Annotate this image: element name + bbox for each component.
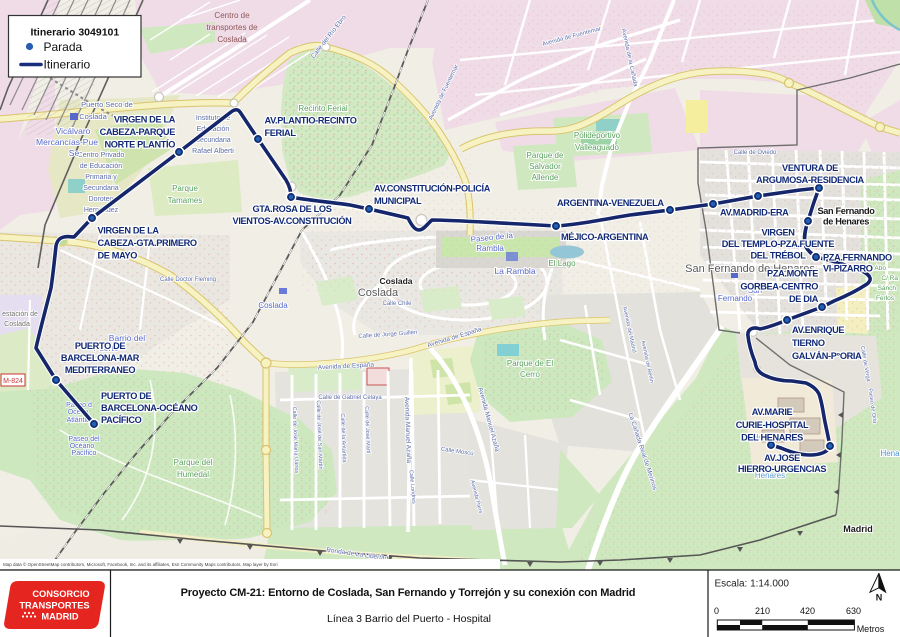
svg-text:CABEZA-PARQUE: CABEZA-PARQUE: [100, 127, 176, 137]
svg-text:PZA.FERNANDO: PZA.FERNANDO: [823, 253, 892, 263]
svg-text:630: 630: [846, 606, 861, 616]
svg-text:Proyecto CM-21: Entorno de Cos: Proyecto CM-21: Entorno de Coslada, San …: [181, 587, 636, 599]
svg-text:de Henares: de Henares: [823, 217, 869, 227]
svg-text:C/ Ra: C/ Ra: [881, 275, 898, 282]
svg-text:Itinerario: Itinerario: [44, 58, 91, 72]
svg-text:TIERNO: TIERNO: [792, 338, 825, 348]
svg-text:Centro Privado: Centro Privado: [78, 152, 125, 159]
svg-text:Polideportivo: Polideportivo: [574, 131, 621, 140]
svg-text:Parque de: Parque de: [527, 151, 564, 160]
svg-text:GORBEA-CENTRO: GORBEA-CENTRO: [740, 282, 818, 292]
svg-text:DE MAYO: DE MAYO: [98, 251, 138, 261]
svg-text:Pacífico: Pacífico: [72, 450, 97, 457]
svg-text:Calle Doctor Fleming: Calle Doctor Fleming: [160, 277, 216, 283]
svg-text:Humedal: Humedal: [177, 470, 209, 479]
svg-text:Parque del: Parque del: [174, 458, 213, 467]
svg-text:Recinto Ferial: Recinto Ferial: [298, 104, 348, 113]
svg-text:CONSORCIO: CONSORCIO: [32, 589, 89, 599]
svg-text:N: N: [876, 593, 883, 603]
svg-text:estación de: estación de: [2, 311, 38, 318]
svg-text:Parada: Parada: [44, 40, 83, 54]
svg-text:Se: Se: [69, 148, 80, 158]
svg-text:CURIE-HOSPITAL: CURIE-HOSPITAL: [736, 420, 809, 430]
svg-text:Map data © OpenStreetMap contr: Map data © OpenStreetMap contributors, M…: [3, 561, 278, 567]
svg-text:M-824: M-824: [3, 378, 23, 385]
svg-text:DEL TRÉBOL: DEL TRÉBOL: [750, 250, 806, 261]
svg-text:MADRID: MADRID: [41, 612, 78, 622]
svg-text:Fernando: Fernando: [718, 294, 753, 303]
svg-text:GALVÁN-P°ORIA: GALVÁN-P°ORIA: [792, 350, 862, 361]
svg-text:Hena: Hena: [880, 449, 900, 458]
svg-text:Paseo del: Paseo del: [68, 436, 100, 443]
svg-text:transportes de: transportes de: [206, 23, 258, 32]
svg-text:Calle Chile: Calle Chile: [382, 301, 412, 307]
svg-text:VI-PIZARRO: VI-PIZARRO: [823, 264, 873, 274]
svg-text:ARGENTINA-VENEZUELA: ARGENTINA-VENEZUELA: [557, 198, 664, 208]
svg-text:Mercancías-Pue: Mercancías-Pue: [36, 137, 98, 147]
svg-text:Calle de Oviedo: Calle de Oviedo: [734, 150, 777, 156]
svg-text:420: 420: [800, 606, 815, 616]
svg-text:San Fernando: San Fernando: [817, 206, 875, 216]
svg-text:Allende: Allende: [532, 173, 559, 182]
svg-text:Océano: Océano: [70, 443, 95, 450]
svg-text:VIRGEN DE LA: VIRGEN DE LA: [114, 115, 176, 125]
svg-text:PUERTO DE: PUERTO DE: [101, 391, 152, 401]
svg-text:BARCELONA-OCÉANO: BARCELONA-OCÉANO: [101, 402, 198, 413]
svg-text:MEDITERRANEO: MEDITERRANEO: [65, 365, 136, 375]
svg-text:Puerto Seco de: Puerto Seco de: [81, 100, 133, 109]
svg-text:CABEZA-GTA.PRIMERO: CABEZA-GTA.PRIMERO: [98, 238, 197, 248]
svg-text:VIRGEN: VIRGEN: [761, 228, 795, 238]
svg-text:VENTURA DE: VENTURA DE: [782, 163, 838, 173]
svg-text:PUERTO DE: PUERTO DE: [75, 341, 126, 351]
svg-text:AV.MADRID-ERA: AV.MADRID-ERA: [720, 208, 789, 218]
svg-text:PZA.MONTE: PZA.MONTE: [767, 269, 818, 279]
svg-text:Coslada: Coslada: [4, 321, 30, 328]
svg-text:Valleaguado: Valleaguado: [575, 143, 619, 152]
svg-text:TRANSPORTES: TRANSPORTES: [19, 601, 89, 611]
svg-text:de Educación: de Educación: [80, 163, 123, 170]
svg-text:ARGUMOSA-RESIDENCIA: ARGUMOSA-RESIDENCIA: [756, 175, 864, 185]
svg-text:GTA.ROSA DE LOS: GTA.ROSA DE LOS: [253, 204, 332, 214]
svg-text:VIRGEN DE LA: VIRGEN DE LA: [98, 226, 160, 236]
svg-text:Sánch: Sánch: [878, 285, 897, 292]
svg-text:VIENTOS-AV.CONSTITUCIÓN: VIENTOS-AV.CONSTITUCIÓN: [233, 215, 353, 226]
svg-text:Línea 3 Barrio del Puerto - Ho: Línea 3 Barrio del Puerto - Hospital: [327, 613, 491, 625]
svg-text:Coslada: Coslada: [79, 112, 107, 121]
svg-text:Cerro: Cerro: [520, 370, 541, 379]
svg-text:Vicálvaro: Vicálvaro: [56, 126, 91, 136]
svg-text:NORTE PLANTÍO: NORTE PLANTÍO: [105, 139, 176, 150]
svg-text:DEL TEMPLO-PZA.FUENTE: DEL TEMPLO-PZA.FUENTE: [722, 239, 835, 249]
svg-text:Parque: Parque: [172, 184, 198, 193]
svg-text:AV.ENRIQUE: AV.ENRIQUE: [792, 325, 844, 335]
svg-text:AV.CONSTITUCIÓN-POLICÍA: AV.CONSTITUCIÓN-POLICÍA: [374, 183, 491, 194]
svg-text:HIERRO-URGENCIAS: HIERRO-URGENCIAS: [738, 464, 827, 474]
svg-text:Salvador: Salvador: [529, 162, 561, 171]
svg-text:Primaria y: Primaria y: [85, 174, 117, 181]
svg-text:MÉJICO-ARGENTINA: MÉJICO-ARGENTINA: [561, 231, 649, 242]
svg-text:AV.PLANTIO-RECINTO: AV.PLANTIO-RECINTO: [265, 116, 357, 126]
svg-text:0: 0: [714, 606, 719, 616]
svg-text:DE DIA: DE DIA: [789, 294, 819, 304]
svg-text:Secundaria: Secundaria: [83, 185, 119, 192]
svg-text:Calle de Gabriel Celaya: Calle de Gabriel Celaya: [318, 395, 382, 401]
svg-text:Escala: 1:14.000: Escala: 1:14.000: [715, 579, 790, 590]
svg-text:DEL HENARES: DEL HENARES: [741, 433, 803, 443]
svg-text:MUNICIPAL: MUNICIPAL: [374, 196, 422, 206]
svg-text:AV.MARIE: AV.MARIE: [752, 407, 793, 417]
svg-text:Itinerario 3049101: Itinerario 3049101: [31, 27, 120, 39]
svg-text:Centro de: Centro de: [214, 11, 250, 20]
svg-text:Madrid: Madrid: [843, 524, 873, 534]
svg-text:Tamames: Tamames: [168, 196, 203, 205]
svg-text:Coslada: Coslada: [217, 35, 247, 44]
svg-text:FERIAL: FERIAL: [265, 128, 297, 138]
svg-text:Abo: Abo: [874, 265, 886, 272]
svg-text:Ferlos: Ferlos: [876, 295, 895, 302]
svg-text:BARCELONA-MAR: BARCELONA-MAR: [61, 353, 140, 363]
svg-text:Metros: Metros: [857, 624, 885, 634]
svg-text:AV.JOSE: AV.JOSE: [764, 453, 800, 463]
svg-text:Coslada: Coslada: [258, 301, 288, 310]
svg-text:Parque de El: Parque de El: [507, 359, 553, 368]
svg-text:PACÍFICO: PACÍFICO: [101, 414, 142, 425]
svg-text:210: 210: [755, 606, 770, 616]
svg-text:Rafael Alberti: Rafael Alberti: [192, 148, 234, 155]
